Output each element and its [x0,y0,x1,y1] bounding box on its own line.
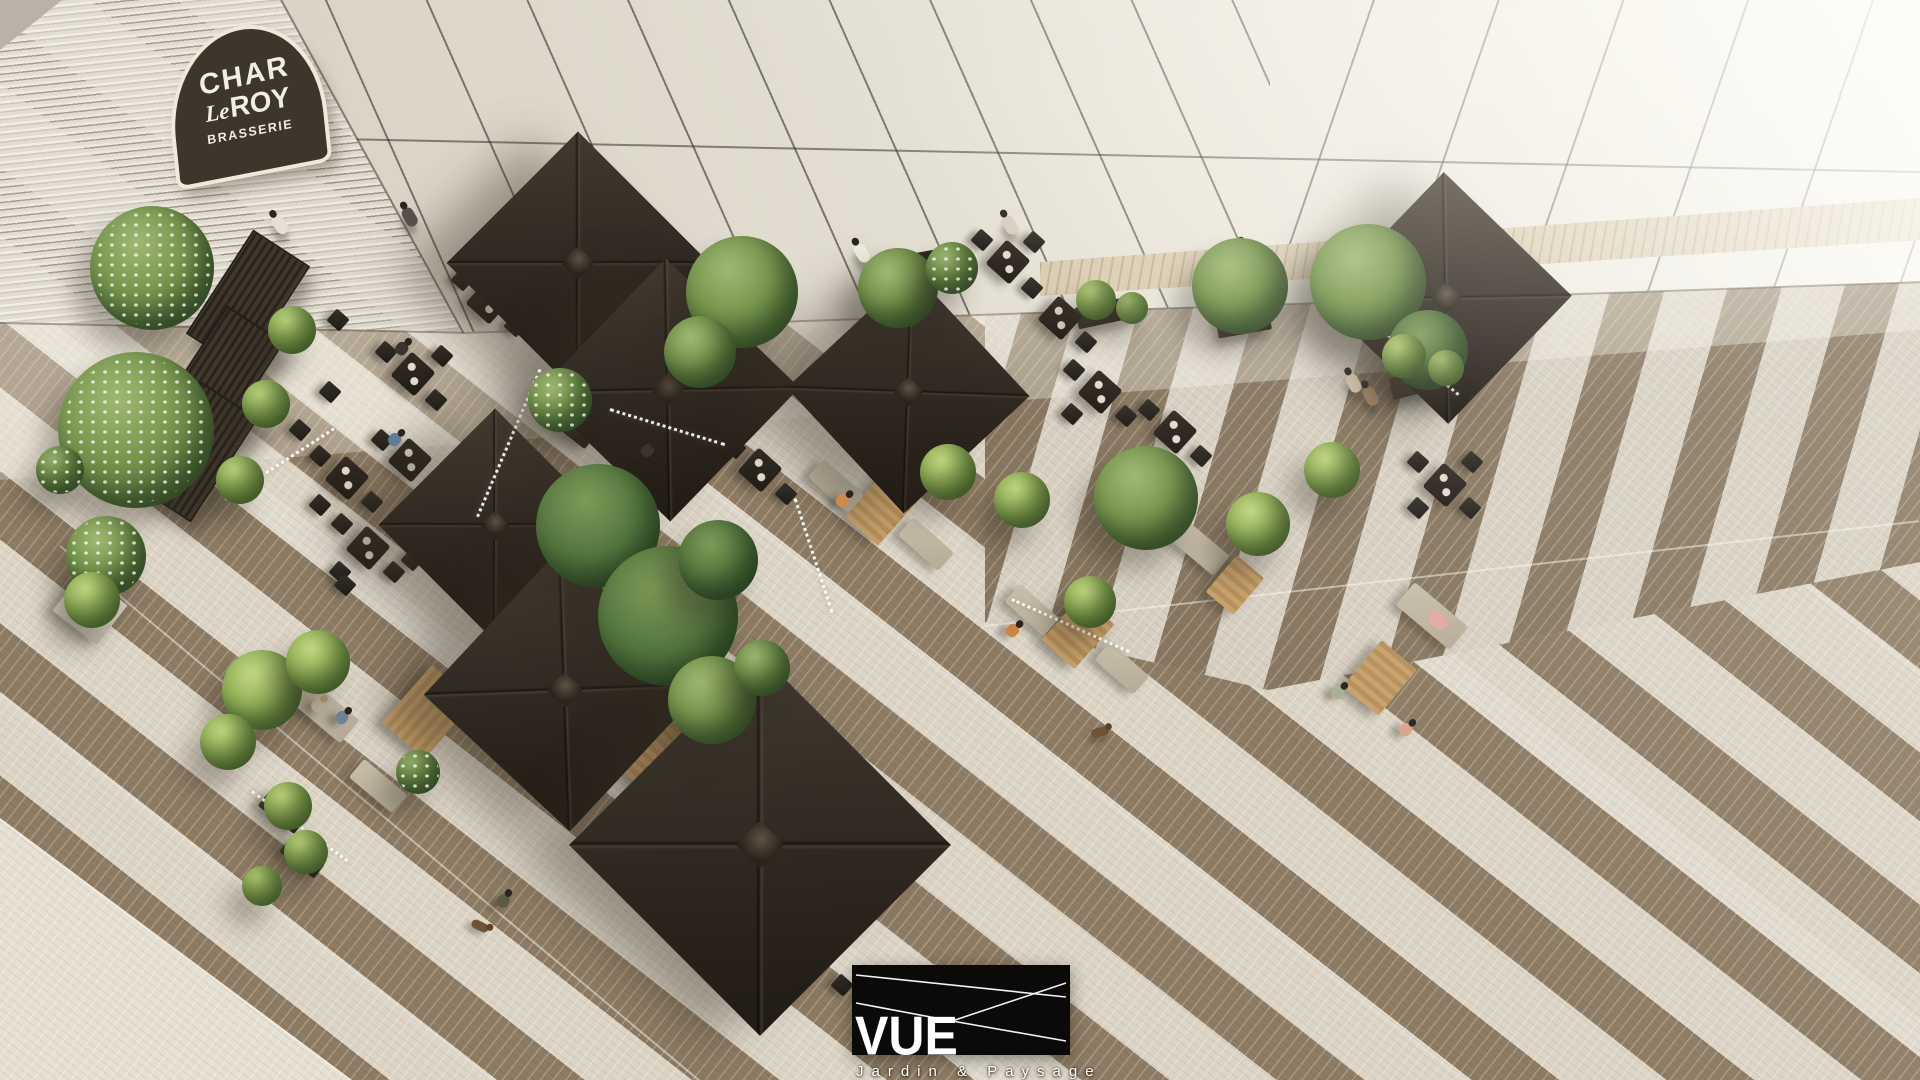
tree [1094,446,1198,550]
bush [284,830,328,874]
studio-logo: VUE Jardin & Paysage [852,965,1076,1080]
bush [1116,292,1148,324]
tree [734,640,790,696]
terrace-aerial-render: CHAR LeROY BRASSERIE [0,0,1920,1080]
blossom-tree [58,352,214,508]
tree [678,520,758,600]
bush [994,472,1050,528]
blossom-bush [528,368,592,432]
bush [242,380,290,428]
blossom-bush [396,750,440,794]
bush [1304,442,1360,498]
bush [242,866,282,906]
bush [920,444,976,500]
logo-tagline: Jardin & Paysage [856,1063,1076,1080]
blossom-tree [926,242,978,294]
tree [1192,238,1288,334]
logo-wordmark: VUE [855,1014,958,1059]
bush [216,456,264,504]
bush [1076,280,1116,320]
bush [264,782,312,830]
bush [286,630,350,694]
sign-line-2-prefix: Le [204,97,230,127]
bush [1226,492,1290,556]
bush [1064,576,1116,628]
bush [64,572,120,628]
blossom-tree [36,446,84,494]
blossom-tree [90,206,214,330]
bush [268,306,316,354]
logo-box: VUE [852,965,1070,1055]
bush [1428,350,1464,386]
bush [1382,334,1426,378]
tree [664,316,736,388]
bush [200,714,256,770]
